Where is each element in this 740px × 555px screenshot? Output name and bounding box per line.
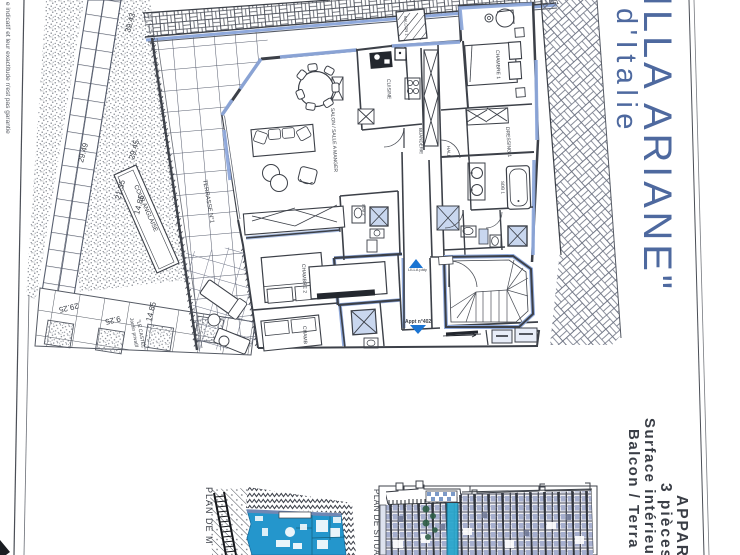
- svg-text:Appt n°402: Appt n°402: [405, 319, 431, 325]
- svg-text:APPART: APPART: [673, 495, 690, 555]
- svg-text:HALL: HALL: [446, 146, 451, 158]
- svg-text:3 pièces: 3 pièces: [657, 483, 674, 555]
- svg-text:CUISINE: CUISINE: [385, 79, 392, 100]
- svg-text:CHAMBRE 1: CHAMBRE 1: [494, 50, 501, 80]
- svg-text:e indicatif et leur exactitude: e indicatif et leur exactitude n'est pas…: [4, 2, 11, 134]
- svg-text:LILLA pâty: LILLA pâty: [408, 267, 427, 272]
- svg-text:CHAMB: CHAMB: [301, 326, 308, 345]
- svg-text:SDB 2: SDB 2: [361, 204, 366, 217]
- svg-text:Surface intérieu: Surface intérieu: [641, 418, 658, 555]
- svg-text:Balcon / Terra: Balcon / Terra: [625, 429, 642, 549]
- svg-text:BUANDERIE: BUANDERIE: [418, 128, 424, 154]
- svg-text:SDB 1: SDB 1: [500, 181, 505, 195]
- svg-text:d'Italie: d'Italie: [610, 8, 642, 135]
